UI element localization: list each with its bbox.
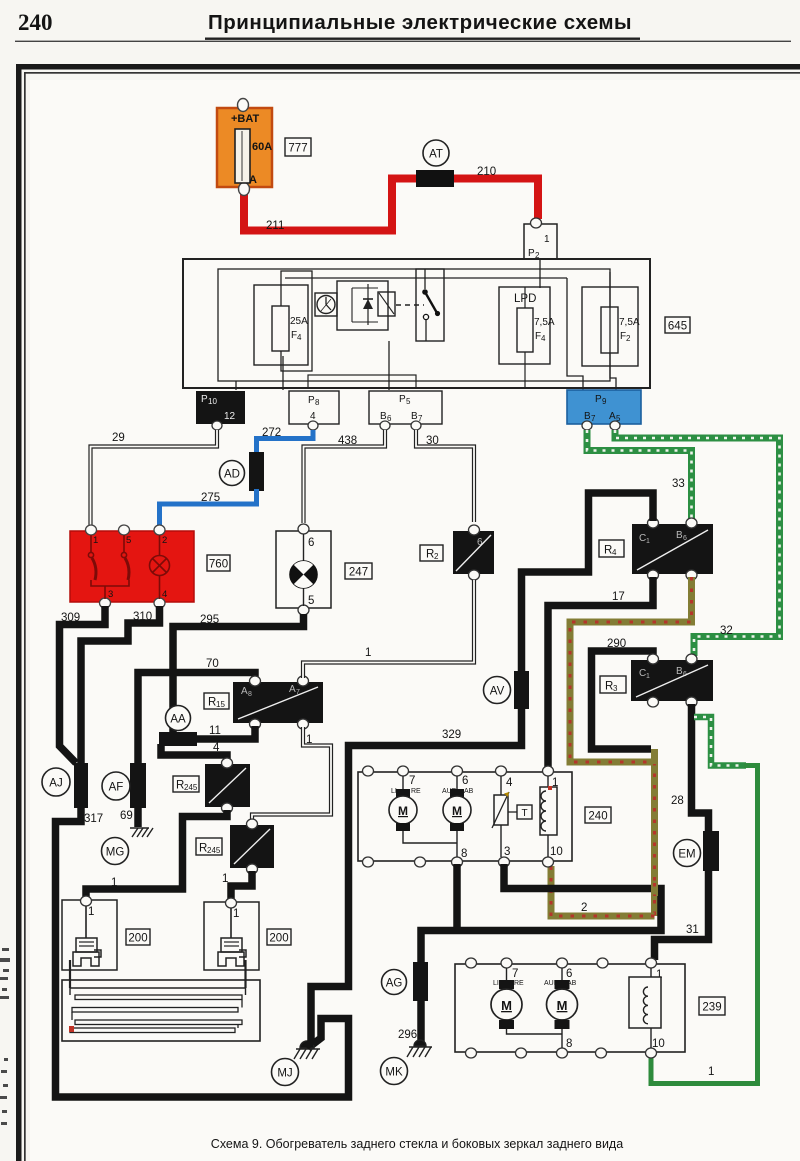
svg-text:247: 247 — [349, 567, 368, 579]
svg-text:12: 12 — [224, 411, 236, 422]
svg-text:32: 32 — [720, 625, 733, 637]
svg-text:5: 5 — [308, 595, 314, 607]
svg-text:1: 1 — [88, 906, 94, 918]
svg-text:2: 2 — [434, 552, 439, 561]
svg-text:760: 760 — [209, 559, 228, 571]
svg-text:3: 3 — [108, 589, 113, 600]
svg-text:28: 28 — [671, 795, 684, 807]
svg-text:7: 7 — [409, 775, 415, 787]
svg-text:B: B — [676, 530, 683, 541]
svg-text:317: 317 — [84, 813, 103, 825]
svg-text:B: B — [380, 411, 387, 422]
svg-text:295: 295 — [200, 614, 219, 626]
svg-text:25A: 25A — [290, 316, 308, 327]
svg-text:AJ: AJ — [49, 778, 62, 790]
svg-text:2: 2 — [626, 334, 631, 343]
svg-text:69: 69 — [120, 810, 133, 822]
svg-text:15: 15 — [216, 700, 225, 709]
svg-text:3: 3 — [504, 846, 510, 858]
svg-text:8: 8 — [461, 848, 467, 860]
svg-text:645: 645 — [668, 321, 687, 333]
svg-text:240: 240 — [588, 811, 607, 823]
svg-text:211: 211 — [266, 220, 284, 232]
svg-text:1: 1 — [646, 673, 650, 680]
svg-text:RE: RE — [411, 788, 421, 795]
svg-text:272: 272 — [262, 427, 281, 439]
svg-text:7: 7 — [512, 968, 518, 980]
svg-text:200: 200 — [128, 933, 147, 945]
svg-text:1: 1 — [111, 877, 117, 889]
svg-text:10: 10 — [550, 846, 563, 858]
svg-text:RE: RE — [514, 980, 524, 987]
svg-text:296: 296 — [398, 1029, 417, 1041]
svg-text:245: 245 — [207, 846, 221, 855]
svg-text:4: 4 — [506, 777, 513, 789]
svg-text:M: M — [398, 804, 408, 818]
svg-text:M: M — [557, 998, 568, 1013]
svg-text:+BAT: +BAT — [231, 113, 259, 125]
svg-text:438: 438 — [338, 435, 357, 447]
svg-text:29: 29 — [112, 432, 125, 444]
svg-text:Схема 9. Обогреватель заднего: Схема 9. Обогреватель заднего стекла и б… — [211, 1137, 623, 1151]
svg-text:P: P — [528, 248, 535, 259]
svg-text:AF: AF — [109, 782, 124, 794]
svg-text:17: 17 — [612, 591, 625, 603]
svg-text:1: 1 — [93, 535, 98, 546]
svg-text:AG: AG — [386, 978, 403, 990]
svg-text:B: B — [676, 666, 683, 677]
svg-text:245: 245 — [184, 783, 198, 792]
svg-text:M: M — [501, 998, 512, 1013]
svg-text:1: 1 — [544, 234, 550, 245]
svg-text:6: 6 — [683, 535, 687, 542]
svg-text:6: 6 — [308, 537, 314, 549]
svg-text:33: 33 — [672, 478, 685, 490]
svg-text:5: 5 — [406, 397, 411, 406]
svg-text:5: 5 — [126, 535, 131, 546]
svg-text:P: P — [399, 394, 406, 405]
svg-text:200: 200 — [269, 933, 288, 945]
svg-text:A: A — [241, 686, 248, 697]
svg-text:2: 2 — [581, 902, 587, 914]
svg-text:9: 9 — [602, 397, 607, 406]
svg-text:239: 239 — [702, 1002, 721, 1014]
svg-text:EM: EM — [678, 849, 695, 861]
svg-text:P: P — [201, 394, 208, 405]
svg-text:8: 8 — [248, 691, 252, 698]
svg-text:A: A — [249, 174, 257, 186]
svg-text:1: 1 — [708, 1066, 714, 1078]
svg-text:31: 31 — [686, 924, 699, 936]
svg-text:1: 1 — [233, 908, 239, 920]
svg-text:A: A — [289, 684, 296, 695]
svg-text:2: 2 — [162, 535, 167, 546]
svg-text:275: 275 — [201, 492, 220, 504]
svg-text:309: 309 — [61, 612, 80, 624]
svg-text:7: 7 — [591, 414, 596, 423]
svg-text:7,5A: 7,5A — [619, 317, 640, 328]
svg-text:7,5A: 7,5A — [534, 317, 555, 328]
svg-text:4: 4 — [213, 742, 220, 754]
svg-text:MJ: MJ — [277, 1068, 292, 1080]
svg-text:4: 4 — [297, 333, 302, 342]
svg-text:AV: AV — [490, 686, 505, 698]
svg-text:1: 1 — [222, 873, 228, 885]
svg-text:AD: AD — [224, 469, 240, 481]
svg-text:LI: LI — [493, 980, 499, 987]
svg-text:T: T — [521, 808, 527, 819]
svg-text:3: 3 — [613, 684, 618, 693]
svg-text:1: 1 — [646, 538, 650, 545]
svg-text:1: 1 — [365, 647, 371, 659]
svg-text:AT: AT — [429, 149, 443, 161]
svg-text:777: 777 — [288, 143, 307, 155]
svg-text:A: A — [609, 411, 616, 422]
svg-text:4: 4 — [541, 334, 546, 343]
svg-text:AA: AA — [170, 714, 186, 726]
svg-text:P: P — [595, 394, 602, 405]
svg-text:240: 240 — [18, 10, 53, 35]
svg-text:B: B — [584, 411, 591, 422]
svg-text:6: 6 — [566, 968, 572, 980]
svg-text:4: 4 — [162, 589, 167, 600]
svg-text:P: P — [308, 395, 315, 406]
svg-text:AB: AB — [464, 788, 474, 795]
svg-text:10: 10 — [652, 1038, 665, 1050]
svg-text:329: 329 — [442, 729, 461, 741]
svg-text:8: 8 — [566, 1038, 572, 1050]
svg-text:MG: MG — [106, 847, 125, 859]
svg-text:B: B — [411, 411, 418, 422]
svg-text:1: 1 — [306, 734, 312, 746]
svg-text:M: M — [452, 804, 462, 818]
svg-text:Принципиальные электрические: Принципиальные электрические схемы — [208, 11, 632, 34]
svg-text:210: 210 — [477, 166, 496, 178]
svg-text:MK: MK — [385, 1067, 403, 1079]
svg-text:11: 11 — [209, 725, 221, 737]
svg-text:60A: 60A — [252, 141, 272, 153]
svg-text:70: 70 — [206, 658, 219, 670]
svg-text:6: 6 — [462, 775, 468, 787]
svg-text:290: 290 — [607, 638, 626, 650]
svg-text:10: 10 — [208, 397, 217, 406]
svg-text:4: 4 — [612, 548, 617, 557]
svg-text:8: 8 — [315, 398, 320, 407]
svg-text:310: 310 — [133, 611, 152, 623]
svg-text:30: 30 — [426, 435, 439, 447]
